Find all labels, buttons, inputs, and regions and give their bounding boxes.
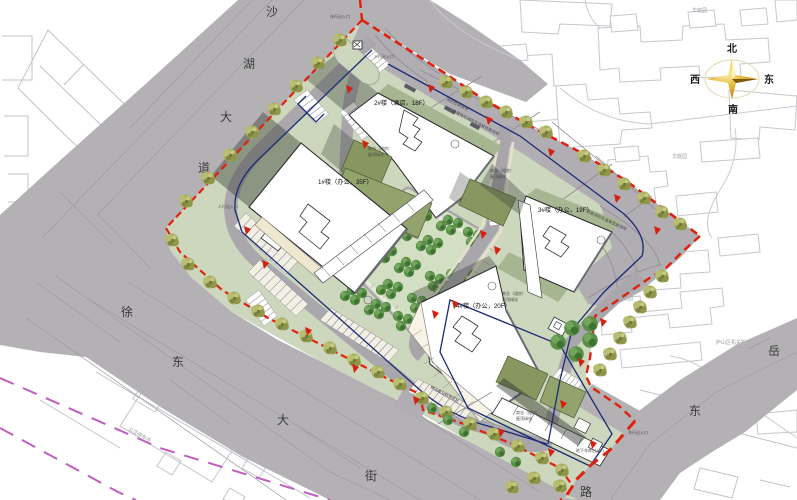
svg-text:徐: 徐: [121, 304, 133, 319]
svg-text:屋顶绿化: 屋顶绿化: [490, 173, 506, 179]
svg-text:人行出入口: 人行出入口: [218, 203, 238, 209]
svg-text:东: 东: [764, 73, 774, 86]
svg-text:大: 大: [277, 413, 289, 427]
svg-text:岳: 岳: [768, 344, 780, 358]
svg-text:商业（裙房）: 商业（裙房）: [502, 290, 526, 296]
svg-text:屋顶绿化: 屋顶绿化: [516, 415, 532, 421]
svg-text:商业（裙房）: 商业（裙房）: [490, 167, 514, 173]
svg-text:3#楼（办公，19F）: 3#楼（办公，19F）: [538, 206, 593, 214]
svg-text:车行出入口: 车行出入口: [330, 13, 350, 19]
svg-text:华庭园: 华庭园: [672, 153, 687, 160]
svg-text:商业（裙房）: 商业（裙房）: [368, 145, 392, 151]
svg-text:屋顶绿化: 屋顶绿化: [368, 151, 384, 157]
svg-text:东: 东: [172, 355, 184, 369]
svg-text:人行出入口: 人行出入口: [374, 53, 394, 59]
svg-text:东: 东: [689, 404, 701, 418]
svg-text:屋顶绿化: 屋顶绿化: [502, 296, 518, 302]
svg-text:4#楼（办公，20F）: 4#楼（办公，20F）: [456, 302, 511, 310]
svg-text:1#楼（办公，35F）: 1#楼（办公，35F）: [318, 178, 373, 186]
svg-text:大: 大: [220, 110, 232, 124]
svg-text:地下车库出入口: 地下车库出入口: [576, 447, 604, 453]
svg-text:湖: 湖: [243, 56, 255, 71]
svg-text:商业（裙房）: 商业（裙房）: [516, 409, 540, 415]
svg-text:沙: 沙: [266, 5, 278, 19]
svg-text:西: 西: [690, 74, 700, 86]
svg-text:南: 南: [728, 103, 738, 116]
svg-text:街: 街: [365, 469, 377, 483]
svg-text:路: 路: [580, 484, 592, 499]
svg-text:2#楼（酒店，18F）: 2#楼（酒店，18F）: [374, 99, 429, 107]
svg-text:北: 北: [727, 42, 737, 55]
svg-text:车行出入口: 车行出入口: [628, 429, 648, 435]
svg-text:华庭园: 华庭园: [692, 7, 707, 14]
